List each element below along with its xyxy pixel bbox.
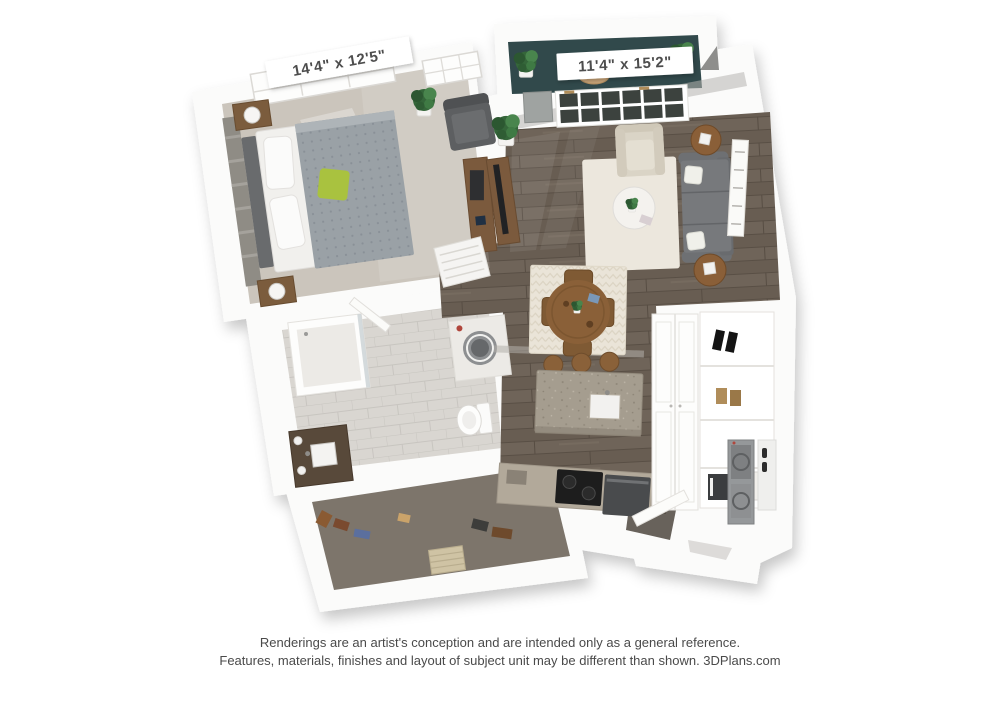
sink [311,442,338,467]
shoe-organizer [428,546,465,574]
laundry-stack [728,440,754,524]
refrigerator [758,440,776,510]
shower [288,314,370,396]
balcony-side-door [523,91,553,122]
counter-item [506,470,527,485]
bed-duvet [295,110,414,268]
dining-area [529,265,627,357]
shoes [730,390,741,406]
floor-plan-rendering: 14'4" x 12'5" 11'4" x 15'2" [0,0,1000,716]
disclaimer: Renderings are an artist's conception an… [0,634,1000,670]
table-decor [699,133,711,145]
pantry-closet [652,312,776,524]
accent-pillow [317,168,350,201]
bar-stool [600,352,620,372]
disclaimer-line-2: Features, materials, finishes and layout… [0,652,1000,670]
bathroom-vanity [289,425,353,488]
bed-pillow [263,136,295,190]
throw-pillow [686,231,705,250]
balcony-french-door [555,84,689,127]
shoes [716,388,727,404]
floor-plan-page: 14'4" x 12'5" 11'4" x 15'2" Renderings a… [0,0,1000,716]
island-sink [589,394,620,419]
table-decor [703,262,715,274]
accent-armchair [615,123,666,177]
closet-doors [652,314,698,510]
disclaimer-line-1: Renderings are an artist's conception an… [0,634,1000,652]
sofa [678,151,734,263]
throw-pillow [684,166,703,185]
island-counter [535,370,643,436]
bedroom-armchair [442,92,496,151]
cooktop [555,469,603,506]
bar-stool [572,353,592,373]
